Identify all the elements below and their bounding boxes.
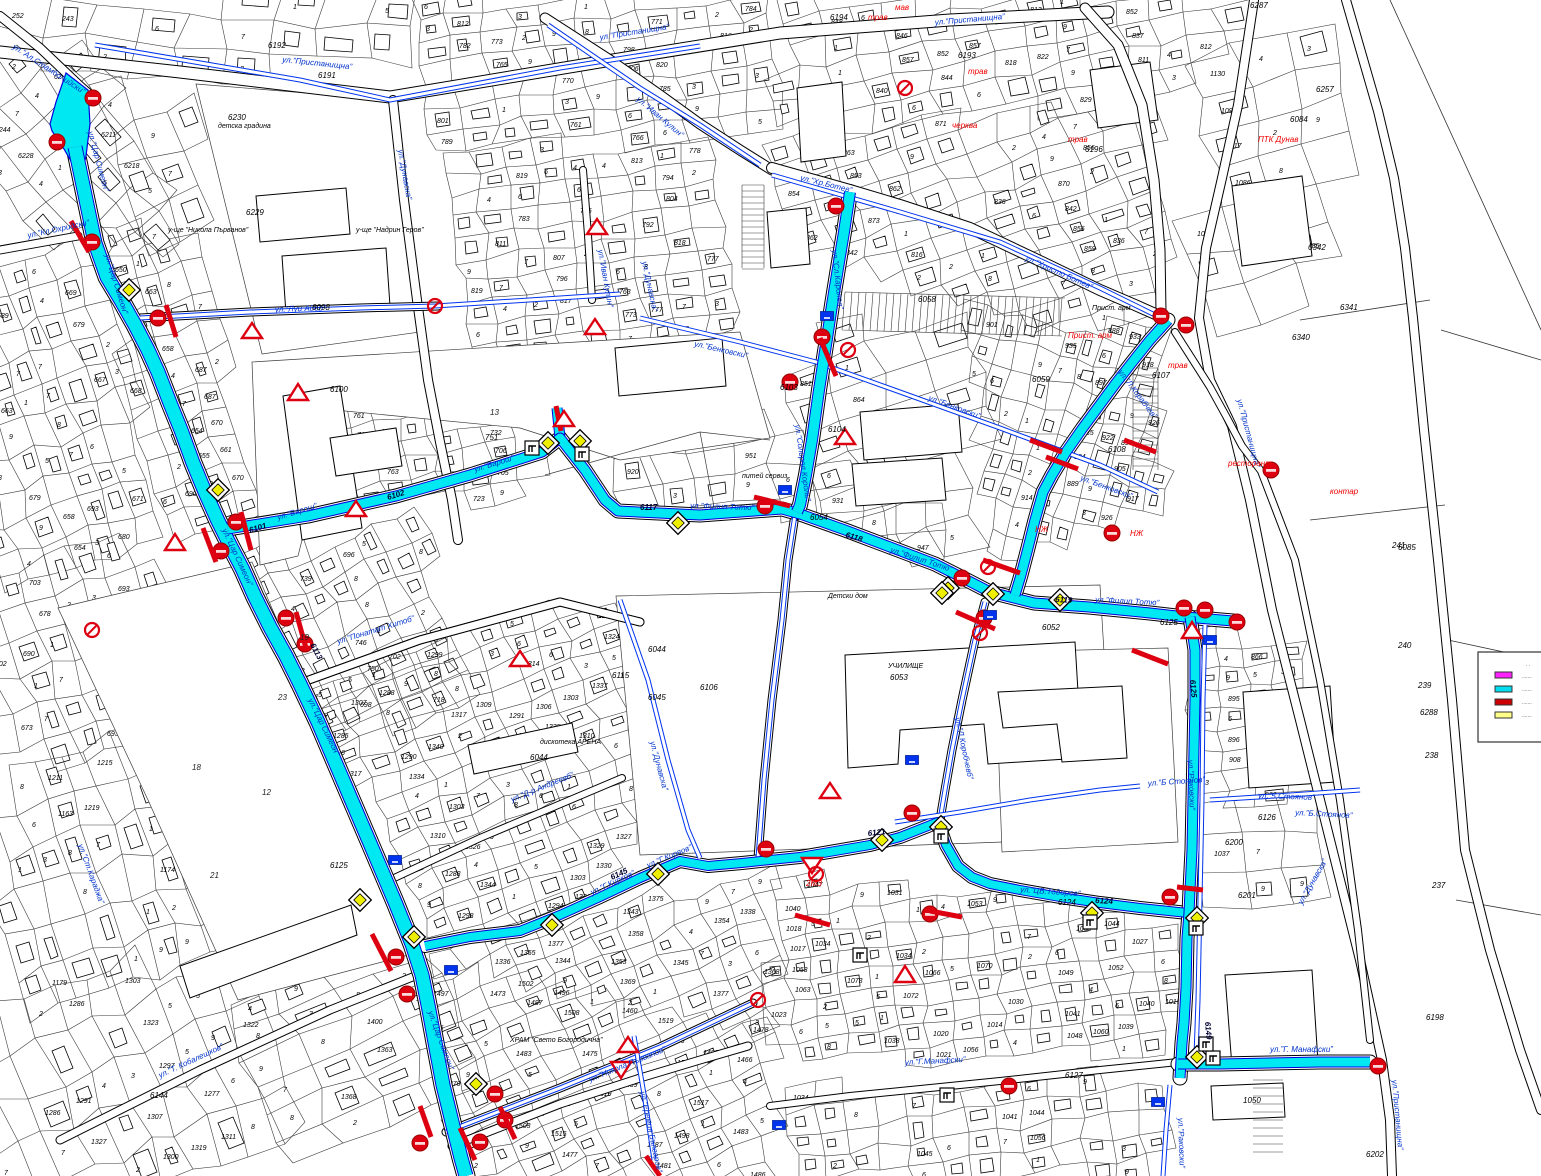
svg-text:НЖ: НЖ xyxy=(1035,525,1049,534)
svg-text:4: 4 xyxy=(1013,1040,1017,1047)
svg-text:8: 8 xyxy=(20,784,24,791)
svg-text:6: 6 xyxy=(990,378,994,385)
svg-text:1291: 1291 xyxy=(76,1098,92,1105)
svg-text:9: 9 xyxy=(525,1143,529,1150)
svg-text:8: 8 xyxy=(251,1124,255,1131)
svg-text:9: 9 xyxy=(993,897,997,904)
svg-text:678: 678 xyxy=(39,611,51,618)
svg-text:1498: 1498 xyxy=(674,1133,690,1140)
svg-text:.......: ....... xyxy=(1522,674,1532,680)
svg-text:трав: трав xyxy=(868,13,888,22)
svg-text:663: 663 xyxy=(1,408,13,415)
svg-text:9: 9 xyxy=(1071,70,1075,77)
svg-text:трав: трав xyxy=(1168,361,1188,370)
svg-text:703: 703 xyxy=(29,580,41,587)
svg-text:2: 2 xyxy=(176,464,181,471)
svg-text:6: 6 xyxy=(1102,353,1106,360)
svg-text:1023: 1023 xyxy=(771,1012,787,1019)
svg-text:5: 5 xyxy=(758,119,762,126)
svg-text:3: 3 xyxy=(1082,510,1086,517)
svg-text:765: 765 xyxy=(496,62,508,69)
svg-text:6: 6 xyxy=(163,499,167,506)
svg-text:1354: 1354 xyxy=(714,918,730,925)
svg-text:2: 2 xyxy=(948,264,953,271)
svg-text:856: 856 xyxy=(1073,226,1085,233)
svg-text:8: 8 xyxy=(629,786,633,793)
svg-text:5: 5 xyxy=(950,535,954,542)
svg-text:8: 8 xyxy=(57,422,61,429)
svg-text:9: 9 xyxy=(1125,1169,1129,1176)
svg-text:9: 9 xyxy=(500,490,504,497)
svg-text:2: 2 xyxy=(533,302,538,309)
svg-text:1344: 1344 xyxy=(555,958,571,965)
svg-text:1060: 1060 xyxy=(1093,1029,1109,1036)
svg-text:1: 1 xyxy=(567,784,571,791)
svg-text:951: 951 xyxy=(745,453,757,460)
svg-text:8: 8 xyxy=(83,889,87,896)
svg-text:6287: 6287 xyxy=(1250,1,1268,10)
svg-text:3: 3 xyxy=(1205,780,1209,787)
svg-text:4: 4 xyxy=(1167,52,1171,59)
svg-text:654: 654 xyxy=(74,545,86,552)
svg-text:8: 8 xyxy=(0,475,2,482)
svg-text:4: 4 xyxy=(39,181,43,188)
svg-text:ХРАМ ”Свето Богородична”: ХРАМ ”Свето Богородична” xyxy=(509,1036,603,1044)
svg-text:6117: 6117 xyxy=(640,503,658,512)
svg-text:8: 8 xyxy=(321,1039,325,1046)
svg-text:6: 6 xyxy=(912,105,916,112)
svg-text:9: 9 xyxy=(1226,675,1230,682)
svg-text:6044: 6044 xyxy=(648,645,666,654)
svg-text:3: 3 xyxy=(715,301,719,308)
svg-text:6: 6 xyxy=(628,113,632,120)
svg-text:1072: 1072 xyxy=(903,993,919,1000)
svg-text:4: 4 xyxy=(487,197,491,204)
svg-text:дискотека АРЕНА: дискотека АРЕНА xyxy=(540,738,601,746)
svg-text:1345: 1345 xyxy=(673,960,689,967)
svg-text:687: 687 xyxy=(195,367,208,374)
svg-text:6: 6 xyxy=(544,169,548,176)
svg-text:3: 3 xyxy=(426,26,430,33)
svg-text:237: 237 xyxy=(1431,881,1446,890)
svg-text:6: 6 xyxy=(922,1172,926,1176)
svg-text:8: 8 xyxy=(419,549,423,556)
svg-text:811: 811 xyxy=(495,241,506,248)
svg-text:4: 4 xyxy=(248,1006,252,1013)
svg-text:801: 801 xyxy=(437,118,449,125)
svg-text:2: 2 xyxy=(1011,145,1016,152)
svg-text:6044: 6044 xyxy=(530,753,548,762)
svg-text:6193: 6193 xyxy=(958,51,976,60)
svg-text:1: 1 xyxy=(58,165,62,172)
svg-text:1: 1 xyxy=(149,826,153,833)
svg-text:2: 2 xyxy=(1089,169,1094,176)
svg-text:854: 854 xyxy=(788,191,800,198)
svg-text:784: 784 xyxy=(745,6,757,13)
svg-text:4: 4 xyxy=(171,373,175,380)
svg-text:1460: 1460 xyxy=(622,1008,638,1015)
svg-text:6198: 6198 xyxy=(1426,1013,1444,1022)
svg-text:9: 9 xyxy=(910,154,914,161)
svg-text:1027: 1027 xyxy=(1132,939,1149,946)
svg-text:1299: 1299 xyxy=(427,652,443,659)
svg-text:ул.”Г. Манафски”: ул.”Г. Манафски” xyxy=(1269,1045,1333,1054)
svg-text:931: 931 xyxy=(832,498,844,505)
svg-text:238: 238 xyxy=(1424,751,1439,760)
svg-text:864: 864 xyxy=(853,397,865,404)
svg-text:9: 9 xyxy=(860,892,864,899)
svg-text:3: 3 xyxy=(1172,75,1176,82)
svg-text:8: 8 xyxy=(167,282,171,289)
svg-text:4: 4 xyxy=(40,298,44,305)
svg-text:мав: мав xyxy=(895,3,909,12)
svg-text:9: 9 xyxy=(758,879,762,886)
svg-text:670: 670 xyxy=(211,420,223,427)
svg-text:1: 1 xyxy=(444,782,448,789)
svg-text:1323: 1323 xyxy=(143,1020,159,1027)
svg-text:6: 6 xyxy=(827,473,831,480)
svg-text:1303: 1303 xyxy=(570,875,586,882)
svg-text:1: 1 xyxy=(1102,315,1106,322)
svg-text:1063: 1063 xyxy=(795,987,811,994)
svg-text:Прист. арм: Прист. арм xyxy=(1068,331,1113,340)
svg-text:840: 840 xyxy=(876,88,888,95)
svg-text:836: 836 xyxy=(994,199,1006,206)
svg-text:1044: 1044 xyxy=(1029,1110,1045,1117)
svg-text:1050: 1050 xyxy=(1243,1096,1261,1105)
svg-text:1338: 1338 xyxy=(740,909,756,916)
svg-text:9: 9 xyxy=(404,681,408,688)
svg-text:1: 1 xyxy=(834,45,838,52)
svg-text:5: 5 xyxy=(148,188,152,195)
svg-text:питей сервиз: питей сервиз xyxy=(742,472,788,480)
svg-text:1473: 1473 xyxy=(490,991,506,998)
svg-text:6104: 6104 xyxy=(828,425,846,434)
svg-text:5: 5 xyxy=(574,1121,578,1128)
svg-text:6: 6 xyxy=(755,950,759,957)
svg-text:1319: 1319 xyxy=(191,1145,207,1152)
svg-text:6201: 6201 xyxy=(1238,891,1256,900)
svg-text:2: 2 xyxy=(866,935,871,942)
svg-text:1174: 1174 xyxy=(160,867,175,874)
svg-text:3: 3 xyxy=(115,369,119,376)
svg-text:3: 3 xyxy=(1122,1146,1126,1153)
svg-text:3: 3 xyxy=(540,147,544,154)
svg-text:667: 667 xyxy=(94,377,107,384)
svg-text:1377: 1377 xyxy=(548,941,565,948)
svg-text:1070: 1070 xyxy=(977,963,993,970)
svg-text:5: 5 xyxy=(528,1072,532,1079)
svg-text:6: 6 xyxy=(717,1162,721,1169)
svg-text:1041: 1041 xyxy=(1002,1114,1018,1121)
svg-text:2: 2 xyxy=(171,905,176,912)
svg-text:.......: ....... xyxy=(1522,713,1532,719)
svg-text:2: 2 xyxy=(214,359,219,366)
svg-text:6228: 6228 xyxy=(18,153,34,160)
svg-text:3: 3 xyxy=(490,651,494,658)
svg-text:6: 6 xyxy=(32,269,36,276)
svg-text:6: 6 xyxy=(947,1145,951,1152)
svg-text:1: 1 xyxy=(372,672,376,679)
svg-text:6059: 6059 xyxy=(1032,375,1050,384)
svg-text:6126: 6126 xyxy=(1258,813,1276,822)
svg-text:. .: . . xyxy=(1526,662,1530,668)
svg-text:2: 2 xyxy=(691,170,696,177)
svg-text:807: 807 xyxy=(553,255,566,262)
svg-text:12: 12 xyxy=(262,788,271,797)
svg-text:6115: 6115 xyxy=(612,671,630,680)
svg-text:3: 3 xyxy=(131,1073,135,1080)
svg-text:1: 1 xyxy=(136,261,140,268)
svg-text:1400: 1400 xyxy=(367,1019,383,1026)
svg-text:8: 8 xyxy=(290,1115,294,1122)
svg-text:1: 1 xyxy=(875,974,879,981)
svg-text:816: 816 xyxy=(911,252,923,259)
svg-text:4: 4 xyxy=(503,306,507,313)
svg-text:5: 5 xyxy=(1253,672,1257,679)
svg-text:1303: 1303 xyxy=(563,695,579,702)
svg-text:9: 9 xyxy=(528,59,532,66)
svg-text:9: 9 xyxy=(159,947,163,954)
svg-text:1478: 1478 xyxy=(753,1027,769,1034)
svg-text:6045: 6045 xyxy=(648,693,666,702)
svg-text:6149: 6149 xyxy=(1203,1021,1214,1040)
svg-text:1508: 1508 xyxy=(564,1010,580,1017)
svg-text:6196: 6196 xyxy=(1085,145,1103,154)
svg-text:Детски дом: Детски дом xyxy=(827,592,868,600)
svg-text:8: 8 xyxy=(386,710,390,717)
svg-text:1502: 1502 xyxy=(518,981,534,988)
svg-text:1: 1 xyxy=(502,107,506,114)
svg-text:6103: 6103 xyxy=(780,383,798,392)
svg-text:3: 3 xyxy=(692,84,696,91)
svg-text:5: 5 xyxy=(534,864,538,871)
svg-text:812: 812 xyxy=(457,21,469,28)
svg-text:21: 21 xyxy=(209,871,219,880)
svg-text:6342: 6342 xyxy=(1308,243,1326,252)
svg-text:8: 8 xyxy=(455,686,459,693)
svg-text:у-ще ”Никола Първанов”: у-ще ”Никола Първанов” xyxy=(167,227,249,234)
svg-text:1517: 1517 xyxy=(693,1100,710,1107)
svg-text:9: 9 xyxy=(563,978,567,985)
svg-text:5: 5 xyxy=(825,1023,829,1030)
svg-text:2: 2 xyxy=(916,275,921,282)
svg-text:1329: 1329 xyxy=(589,843,605,850)
svg-text:1017: 1017 xyxy=(790,946,807,953)
svg-text:6191: 6191 xyxy=(318,71,336,80)
svg-text:9: 9 xyxy=(1083,1079,1087,1086)
svg-text:2: 2 xyxy=(1003,411,1008,418)
svg-text:6: 6 xyxy=(476,332,480,339)
svg-text:1044: 1044 xyxy=(1104,921,1120,928)
svg-text:243: 243 xyxy=(61,16,74,23)
svg-text:1290: 1290 xyxy=(401,754,417,761)
svg-text:6257: 6257 xyxy=(1316,85,1334,94)
svg-text:889: 889 xyxy=(1067,481,1079,488)
svg-text:857: 857 xyxy=(969,43,982,50)
svg-text:НЖ: НЖ xyxy=(1130,529,1144,538)
svg-text:1310: 1310 xyxy=(430,833,446,840)
svg-text:696: 696 xyxy=(343,552,355,559)
svg-text:1298: 1298 xyxy=(458,913,474,920)
svg-text:2МЗ: 2МЗ xyxy=(805,879,822,888)
svg-text:1486: 1486 xyxy=(750,1172,766,1176)
svg-text:1: 1 xyxy=(838,70,842,77)
svg-text:5: 5 xyxy=(185,1049,189,1056)
svg-text:8: 8 xyxy=(988,276,992,283)
svg-text:3: 3 xyxy=(0,170,2,177)
svg-text:871: 871 xyxy=(935,121,947,128)
svg-text:1355: 1355 xyxy=(520,950,536,957)
svg-text:6: 6 xyxy=(1161,959,1165,966)
svg-text:782: 782 xyxy=(459,43,471,50)
svg-text:673: 673 xyxy=(21,725,33,732)
svg-text:4: 4 xyxy=(102,1083,106,1090)
svg-text:1368: 1368 xyxy=(341,1094,357,1101)
svg-text:866: 866 xyxy=(1251,654,1263,661)
svg-text:851: 851 xyxy=(800,381,812,388)
svg-text:5: 5 xyxy=(950,966,954,973)
svg-text:9: 9 xyxy=(596,94,600,101)
svg-text:819: 819 xyxy=(471,288,483,295)
svg-text:1375: 1375 xyxy=(648,896,664,903)
svg-text:761: 761 xyxy=(353,413,365,420)
svg-text:6052: 6052 xyxy=(1042,623,1060,632)
svg-text:1: 1 xyxy=(653,989,657,996)
svg-text:661: 661 xyxy=(220,447,232,454)
svg-text:1056: 1056 xyxy=(1030,1135,1046,1142)
svg-text:1343: 1343 xyxy=(623,909,639,916)
svg-text:трав: трав xyxy=(1068,135,1088,144)
svg-text:770: 770 xyxy=(562,78,574,85)
svg-text:2: 2 xyxy=(11,64,16,71)
svg-text:1466: 1466 xyxy=(737,1057,753,1064)
svg-text:239: 239 xyxy=(1417,681,1432,690)
svg-text:9: 9 xyxy=(1050,156,1054,163)
svg-text:842: 842 xyxy=(1065,206,1077,213)
svg-text:1053: 1053 xyxy=(967,901,983,908)
svg-text:8: 8 xyxy=(1091,268,1095,275)
svg-text:658: 658 xyxy=(63,514,75,521)
svg-text:1048: 1048 xyxy=(1067,1033,1083,1040)
svg-text:6288: 6288 xyxy=(1420,708,1438,717)
svg-text:1327: 1327 xyxy=(91,1139,108,1146)
svg-text:8: 8 xyxy=(354,576,358,583)
svg-text:5: 5 xyxy=(855,1020,859,1027)
svg-text:у-ще ”Надрин Геров”: у-ще ”Надрин Геров” xyxy=(355,226,424,234)
svg-text:8: 8 xyxy=(827,1044,831,1051)
svg-text:6230: 6230 xyxy=(228,113,246,122)
svg-text:6125: 6125 xyxy=(1160,618,1178,627)
svg-text:9: 9 xyxy=(746,482,750,489)
svg-text:1317: 1317 xyxy=(451,712,468,719)
svg-text:4: 4 xyxy=(689,929,693,936)
svg-text:822: 822 xyxy=(1037,54,1049,61)
svg-text:2: 2 xyxy=(822,1004,827,1011)
svg-text:1014: 1014 xyxy=(987,1022,1003,1029)
svg-text:658: 658 xyxy=(162,346,174,353)
svg-text:857: 857 xyxy=(902,57,915,64)
svg-text:6: 6 xyxy=(799,1029,803,1036)
svg-text:687: 687 xyxy=(204,394,217,401)
svg-text:796: 796 xyxy=(556,276,568,283)
svg-text:6058: 6058 xyxy=(918,295,936,304)
svg-text:6124: 6124 xyxy=(1058,898,1076,907)
svg-text:669: 669 xyxy=(65,290,77,297)
svg-text:804: 804 xyxy=(666,196,678,203)
svg-text:9: 9 xyxy=(427,902,431,909)
svg-text:8: 8 xyxy=(1077,374,1081,381)
svg-text:2: 2 xyxy=(352,1120,357,1127)
svg-text:679: 679 xyxy=(73,322,85,329)
svg-text:5: 5 xyxy=(122,468,126,475)
svg-text:1018: 1018 xyxy=(786,926,802,933)
svg-text:3: 3 xyxy=(755,1020,759,1027)
svg-text:18: 18 xyxy=(192,763,201,772)
svg-text:6124: 6124 xyxy=(1095,896,1114,906)
svg-text:3: 3 xyxy=(584,663,588,670)
svg-text:6: 6 xyxy=(517,641,521,648)
svg-text:1307: 1307 xyxy=(147,1114,164,1121)
svg-text:6: 6 xyxy=(1228,716,1232,723)
svg-text:836: 836 xyxy=(1113,238,1125,245)
svg-text:6229: 6229 xyxy=(246,208,264,217)
svg-text:1: 1 xyxy=(1025,418,1029,425)
svg-text:19: 19 xyxy=(300,633,309,642)
svg-text:4: 4 xyxy=(108,102,112,109)
svg-text:3: 3 xyxy=(43,857,47,864)
svg-text:1288: 1288 xyxy=(445,871,461,878)
svg-text:241: 241 xyxy=(1391,541,1405,550)
svg-text:1219: 1219 xyxy=(84,805,100,812)
svg-text:9: 9 xyxy=(1063,24,1067,31)
svg-text:6: 6 xyxy=(539,793,543,800)
svg-text:.......: ....... xyxy=(1522,700,1532,706)
svg-text:9: 9 xyxy=(1038,362,1042,369)
svg-text:1: 1 xyxy=(701,1121,705,1128)
svg-text:914: 914 xyxy=(1021,495,1033,502)
svg-text:5: 5 xyxy=(876,994,880,1001)
svg-text:859: 859 xyxy=(1084,246,1096,253)
svg-text:4: 4 xyxy=(941,904,945,911)
svg-text:1066: 1066 xyxy=(925,970,941,977)
svg-text:1358: 1358 xyxy=(628,931,644,938)
svg-text:1327: 1327 xyxy=(616,834,633,841)
svg-text:908: 908 xyxy=(1229,757,1241,764)
svg-text:5: 5 xyxy=(760,1118,764,1125)
svg-text:2: 2 xyxy=(38,1011,43,1018)
svg-text:718: 718 xyxy=(433,697,445,704)
svg-text:6244: 6244 xyxy=(0,127,11,134)
svg-text:3: 3 xyxy=(565,99,569,106)
svg-text:1034: 1034 xyxy=(896,953,912,960)
svg-text:6: 6 xyxy=(616,269,620,276)
svg-text:1330: 1330 xyxy=(596,863,612,870)
svg-text:1163: 1163 xyxy=(58,811,73,818)
svg-text:2: 2 xyxy=(714,12,719,19)
svg-text:6: 6 xyxy=(549,652,553,659)
svg-text:6341: 6341 xyxy=(1340,303,1358,312)
svg-text:789: 789 xyxy=(441,139,453,146)
svg-text:818: 818 xyxy=(1005,60,1017,67)
svg-text:1: 1 xyxy=(146,909,150,916)
svg-text:1056: 1056 xyxy=(963,1047,979,1054)
svg-text:1045: 1045 xyxy=(917,1151,933,1158)
svg-text:1377: 1377 xyxy=(713,991,730,998)
svg-text:1052: 1052 xyxy=(1108,965,1124,972)
svg-text:6: 6 xyxy=(518,194,522,201)
svg-text:2: 2 xyxy=(105,342,110,349)
